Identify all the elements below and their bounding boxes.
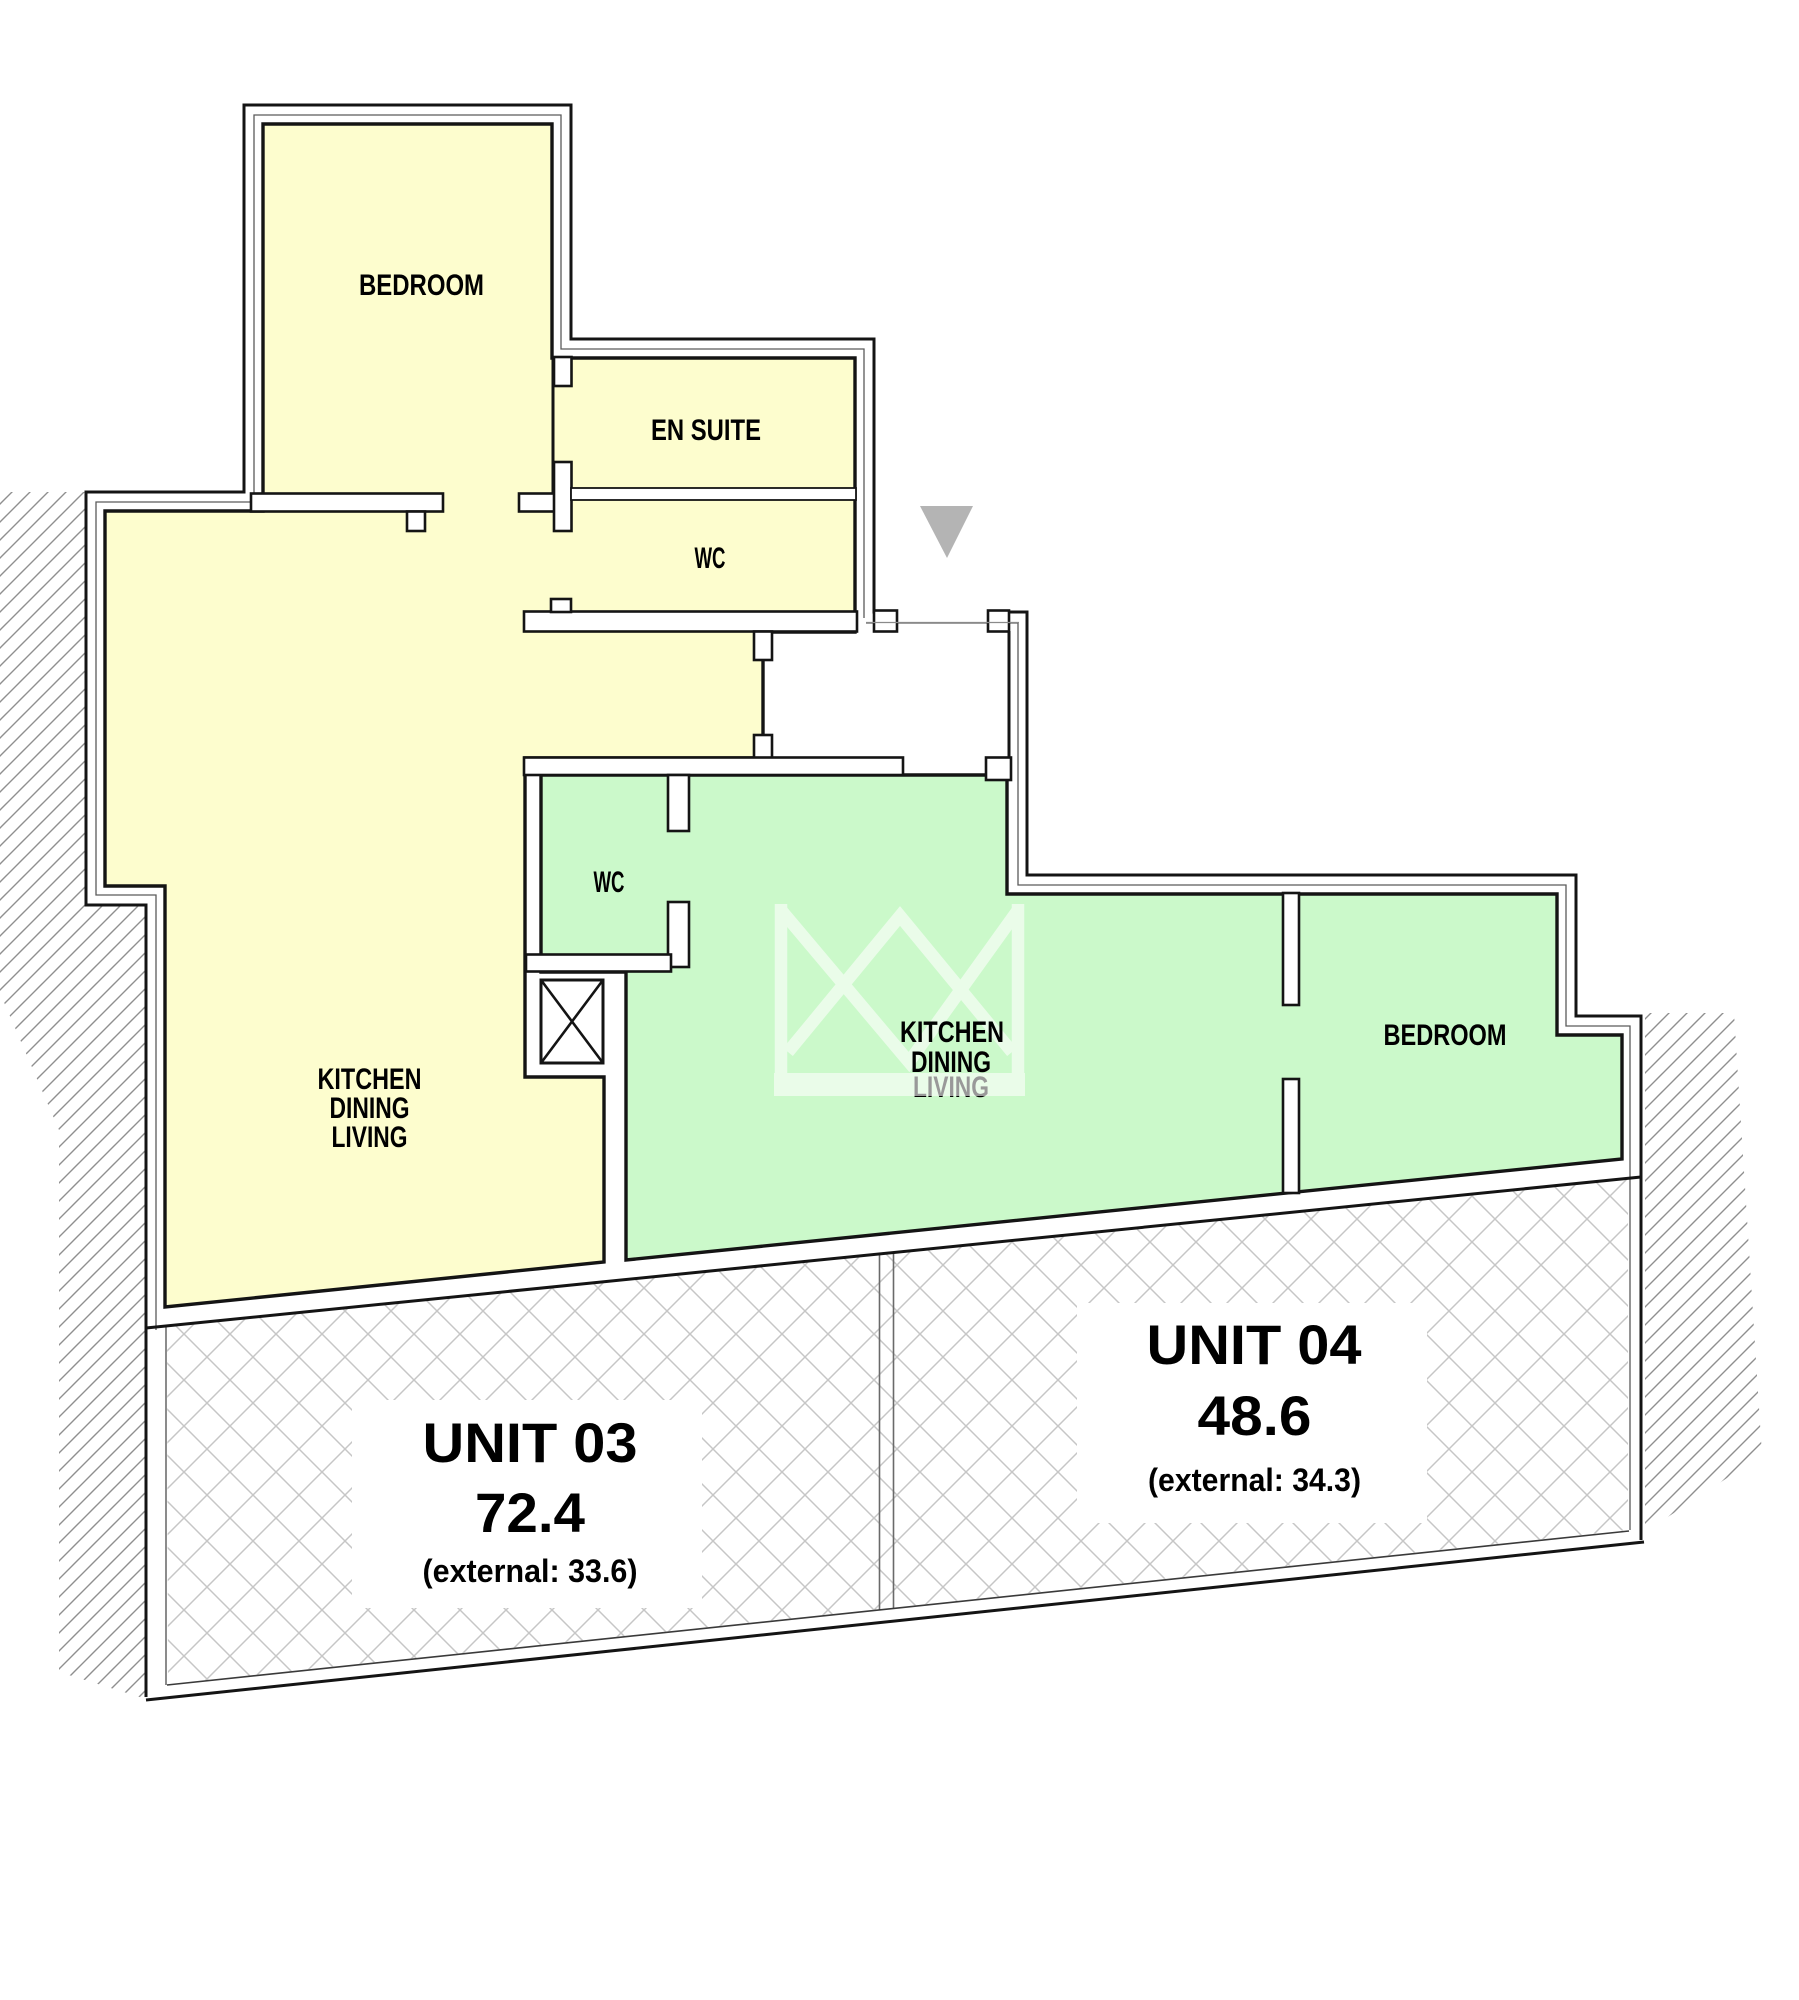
svg-text:UNIT 03: UNIT 03	[423, 1411, 638, 1474]
svg-text:LIVING: LIVING	[332, 1121, 408, 1154]
svg-text:BEDROOM: BEDROOM	[359, 269, 484, 302]
svg-text:UNIT 04: UNIT 04	[1147, 1313, 1362, 1376]
svg-text:48.6: 48.6	[1198, 1384, 1312, 1447]
svg-text:(external: 34.3): (external: 34.3)	[1148, 1462, 1361, 1498]
svg-text:WC: WC	[695, 542, 726, 575]
svg-text:(external: 33.6): (external: 33.6)	[423, 1553, 638, 1589]
svg-text:BEDROOM: BEDROOM	[1384, 1019, 1507, 1052]
svg-text:KITCHEN: KITCHEN	[900, 1016, 1004, 1049]
svg-text:WC: WC	[594, 866, 625, 899]
svg-text:DINING: DINING	[911, 1046, 991, 1079]
svg-text:EN SUITE: EN SUITE	[651, 414, 761, 447]
svg-text:72.4: 72.4	[475, 1481, 585, 1544]
